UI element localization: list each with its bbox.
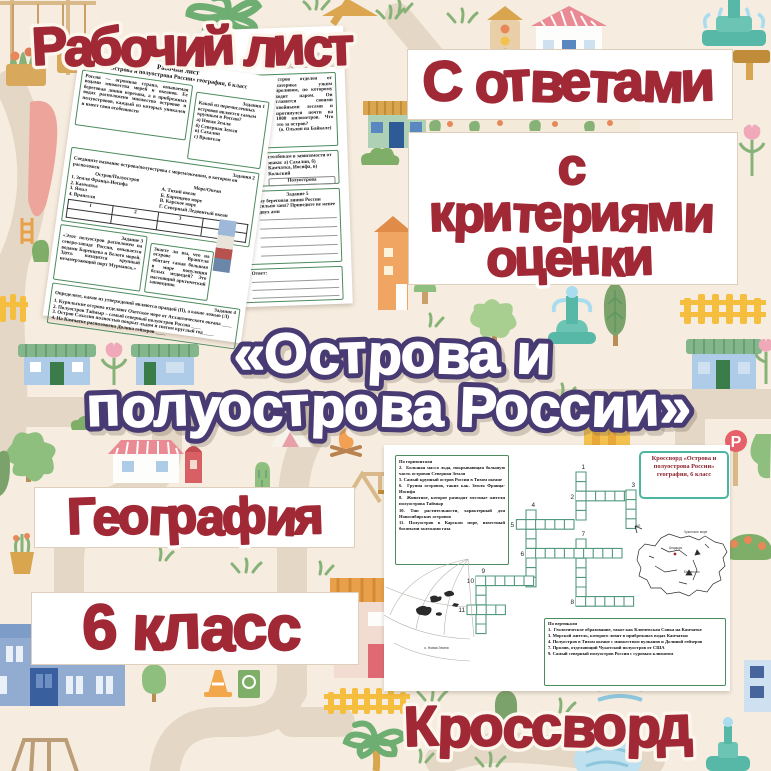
svg-text:8: 8 (570, 599, 574, 606)
svg-text:Анадырь: Анадырь (669, 546, 683, 550)
svg-text:P: P (731, 434, 742, 451)
svg-text:1: 1 (581, 464, 585, 471)
svg-text:Аб.: Аб. (636, 524, 641, 528)
svg-text:6: 6 (520, 551, 524, 558)
svg-text:о. Новая Земля: о. Новая Земля (424, 646, 449, 650)
svg-text:3: 3 (631, 482, 635, 489)
svg-text:5: 5 (510, 522, 514, 529)
svg-text:7: 7 (581, 531, 585, 538)
svg-text:Чукотское море: Чукотское море (684, 530, 707, 534)
svg-text:4: 4 (531, 502, 535, 509)
svg-text:11: 11 (458, 607, 465, 614)
svg-text:10: 10 (467, 578, 475, 585)
svg-text:Берингово: Берингово (684, 570, 700, 574)
svg-text:2: 2 (570, 494, 574, 501)
svg-text:9: 9 (481, 568, 485, 575)
